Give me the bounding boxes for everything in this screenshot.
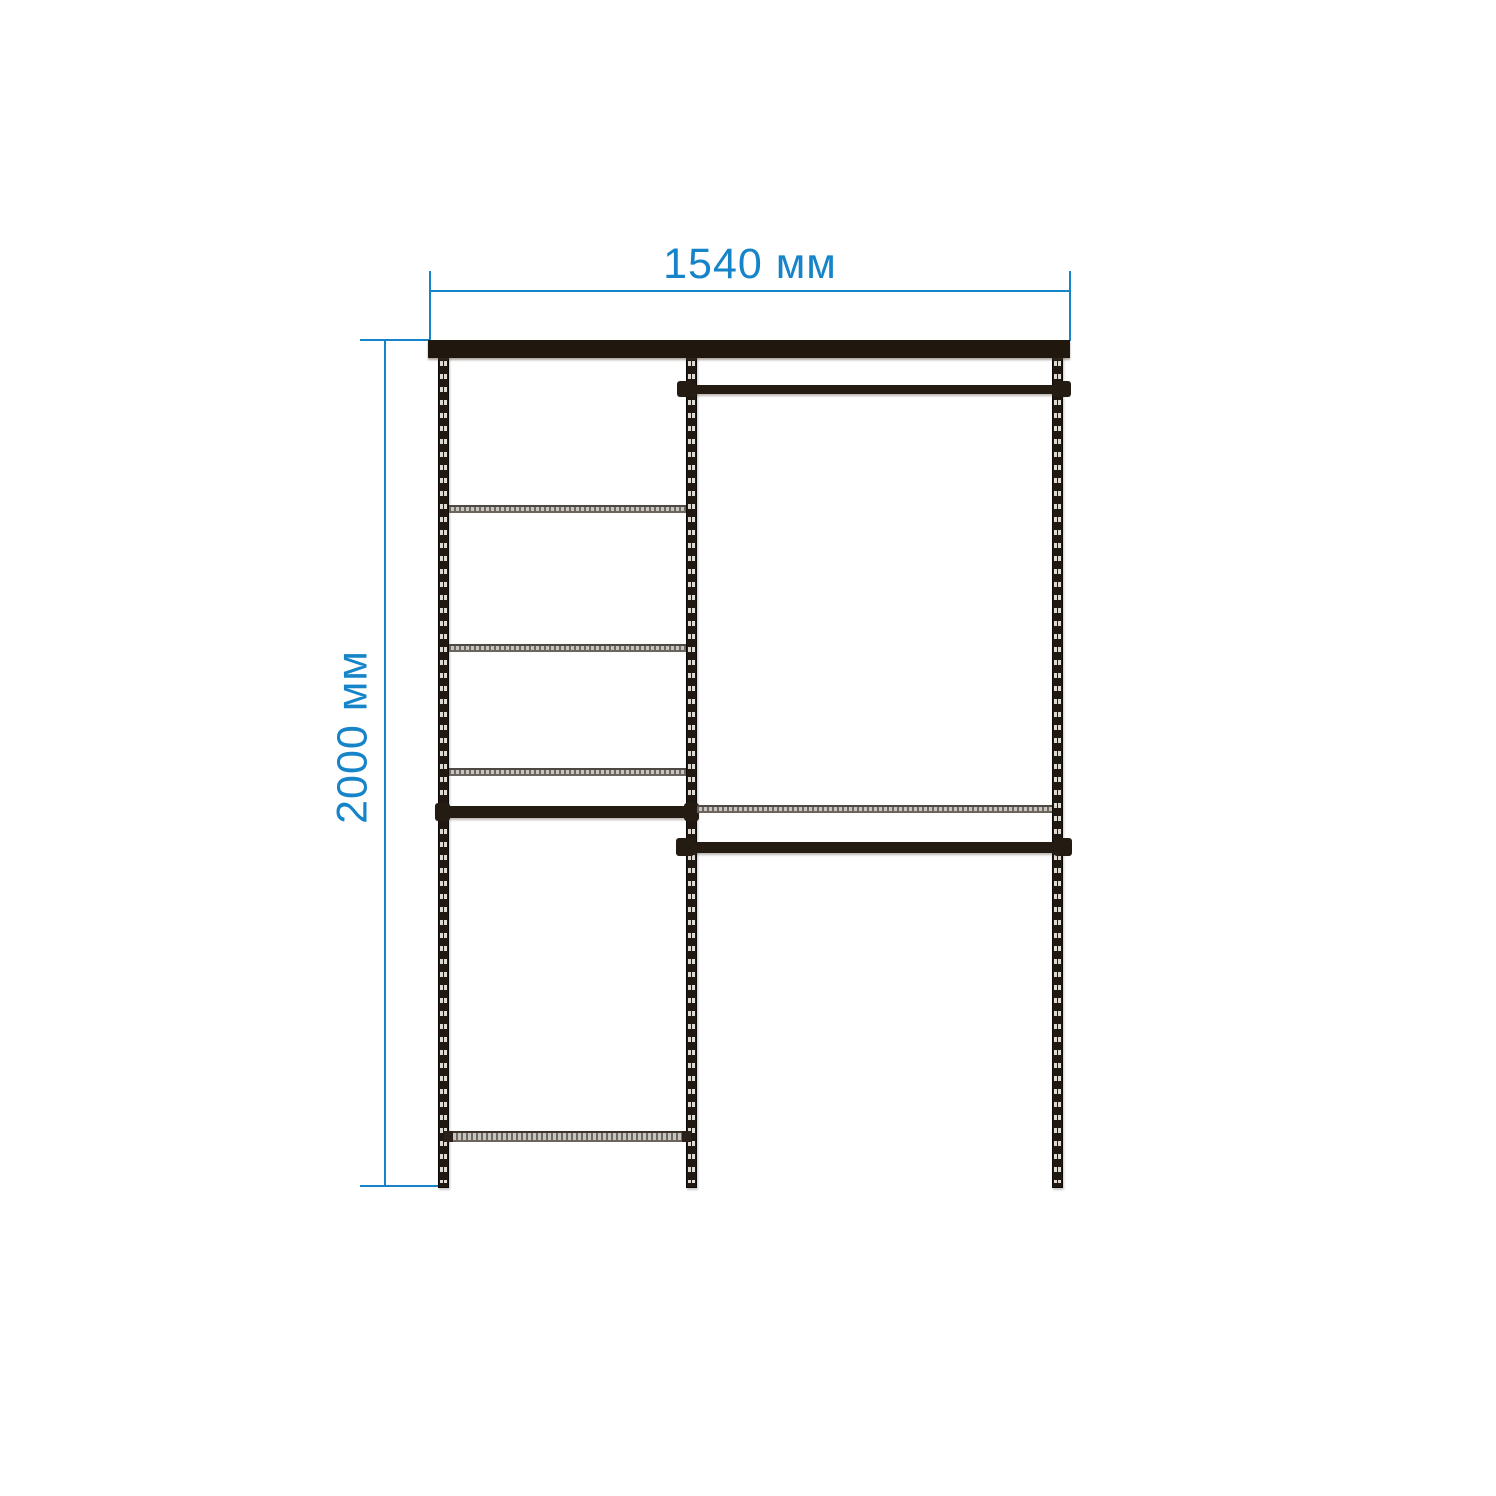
hanger-rod-upper (679, 385, 1069, 394)
hanger-rod-lower-cap-right (1054, 838, 1072, 856)
upright-rail-left (438, 356, 449, 1188)
upright-rail-right (1052, 356, 1063, 1188)
shelf-left-2 (449, 644, 686, 652)
hanger-rod-lower-cap-left (676, 838, 694, 856)
hanger-rod-upper-cap-left (677, 381, 693, 397)
shelf-left-bottom (446, 1131, 689, 1142)
width-dimension-tick-right (1069, 271, 1071, 341)
height-dimension-label: 2000 мм (332, 650, 375, 824)
width-dimension-tick-left (429, 271, 431, 341)
top-mounting-rail (428, 340, 1070, 358)
height-dimension-tick-top (360, 339, 430, 341)
hanger-rod-upper-cap-right (1055, 381, 1071, 397)
width-dimension-label: 1540 мм (560, 243, 940, 286)
hang-bar-left-cap-left (435, 803, 450, 821)
width-dimension-line (429, 290, 1071, 292)
wardrobe-dimension-diagram: 1540 мм 2000 мм (0, 0, 1496, 1496)
shelf-left-1 (449, 505, 686, 513)
shelf-left-3 (449, 768, 686, 776)
shelf-right (697, 805, 1052, 813)
height-dimension-line (384, 340, 386, 1187)
hanger-rod-lower (679, 842, 1069, 853)
upright-rail-middle (686, 356, 697, 1188)
height-dimension-tick-bottom (360, 1185, 438, 1187)
hang-bar-left (436, 806, 698, 818)
